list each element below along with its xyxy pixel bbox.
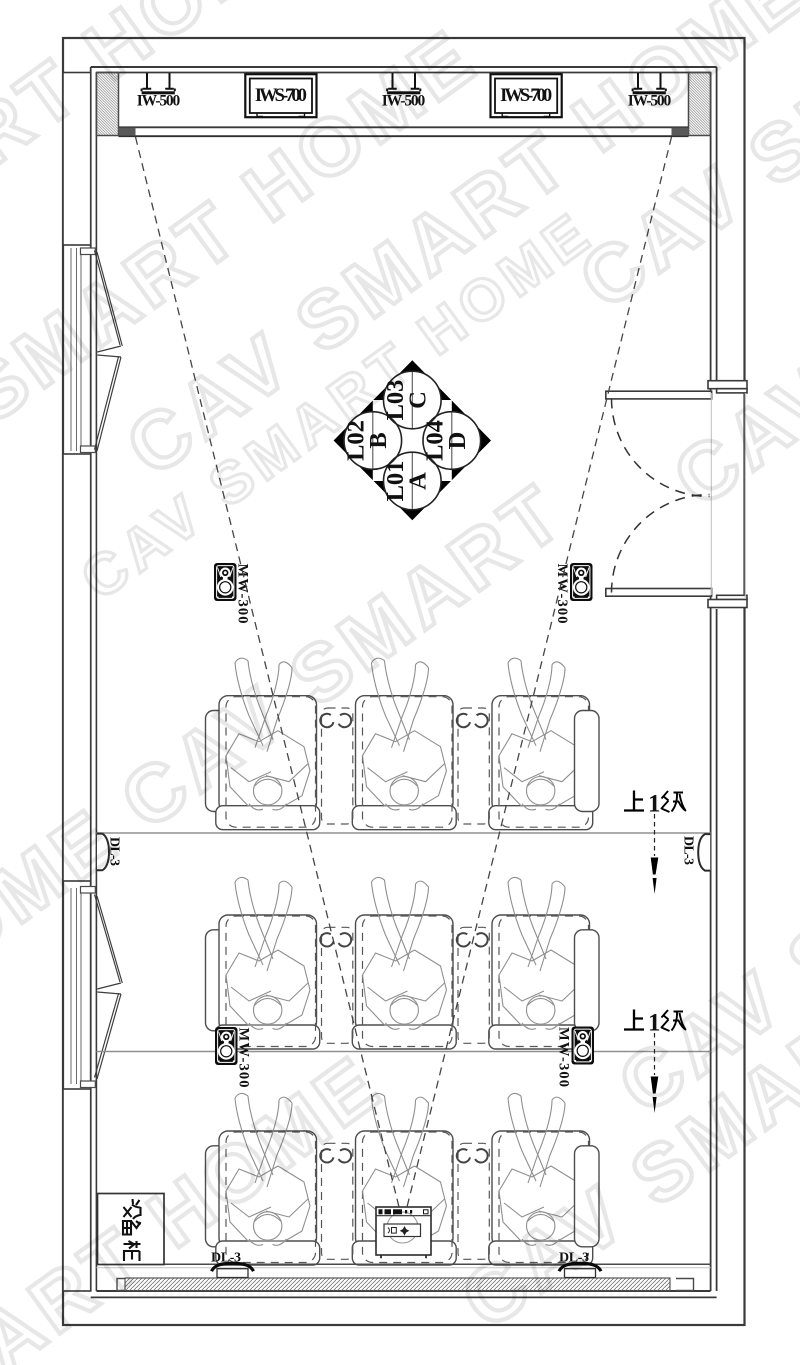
svg-text:B: B [365,432,392,448]
svg-text:IW-500: IW-500 [137,92,181,109]
svg-text:DL-3: DL-3 [211,1251,241,1266]
svg-text:MW-300: MW-300 [556,1027,572,1087]
svg-text:IWS-700: IWS-700 [500,86,552,106]
svg-text:DL-3: DL-3 [681,836,696,865]
svg-text:A: A [405,472,432,490]
svg-text:D: D [444,432,471,450]
svg-text:1: 1 [648,791,661,818]
svg-text:MW-300: MW-300 [236,1028,252,1088]
svg-text:MW-300: MW-300 [554,564,570,624]
svg-text:IWS-700: IWS-700 [255,86,307,106]
